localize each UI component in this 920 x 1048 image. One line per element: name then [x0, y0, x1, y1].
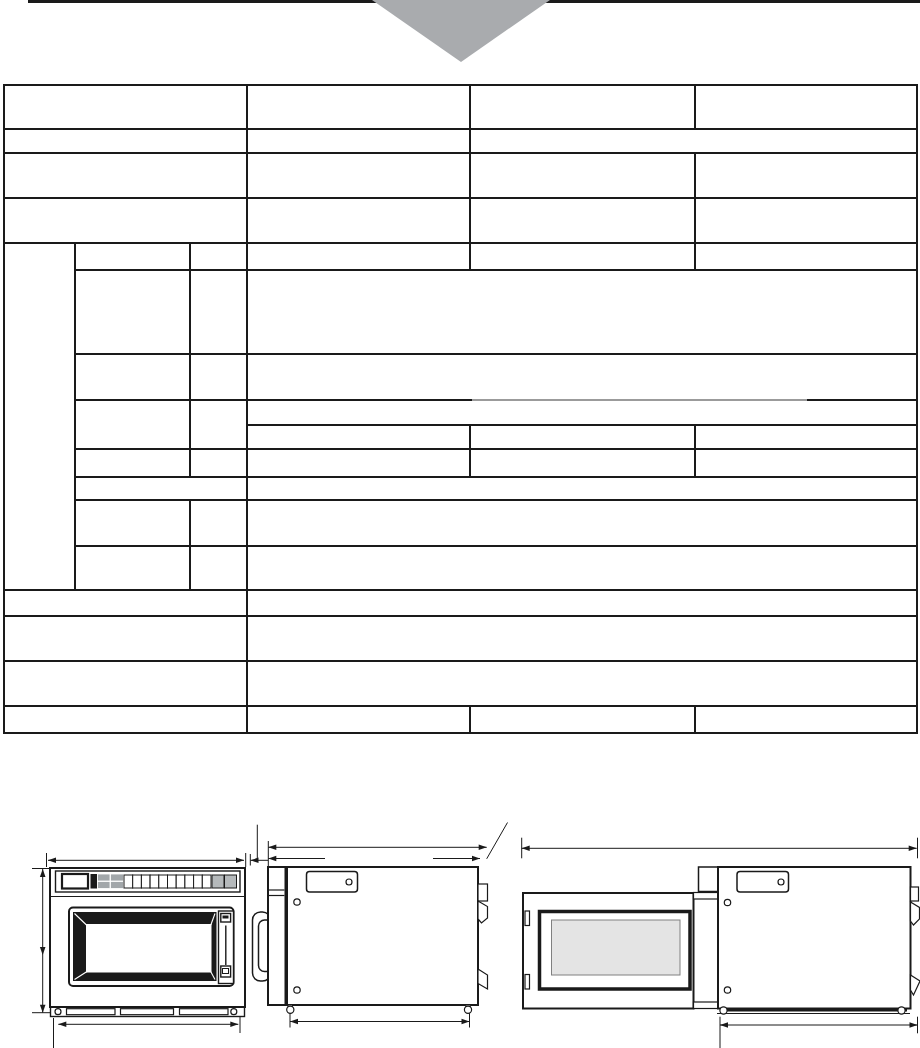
table-gridline-h-faded	[472, 399, 807, 401]
open-view-cabinet	[718, 867, 911, 1009]
table-gridline-h	[75, 448, 918, 450]
table-gridline-v	[469, 84, 471, 270]
door-window-glass	[552, 920, 681, 975]
down-triangle-icon	[372, 0, 550, 62]
open-door	[523, 893, 694, 1009]
door-edge-bar	[285, 867, 289, 1005]
table-gridline-v	[189, 242, 191, 477]
document-page	[0, 0, 920, 1048]
table-gridline-h	[75, 499, 918, 501]
side-view-figure	[253, 823, 508, 1028]
table-gridline-h	[3, 152, 918, 154]
table-gridline-v	[694, 84, 696, 129]
table-gridline-v	[694, 705, 696, 734]
table-gridline-v	[469, 424, 471, 477]
spec-table	[3, 84, 918, 734]
feet	[287, 1005, 472, 1013]
table-gridline-h	[3, 705, 918, 707]
hinge-tab	[694, 1002, 719, 1009]
door-open-view-figure	[522, 838, 920, 1048]
table-gridline-h	[247, 424, 918, 426]
top-left-plate	[699, 867, 719, 892]
table-gridline-h	[3, 128, 918, 130]
table-gridline-v	[246, 84, 248, 734]
side-cabinet	[268, 867, 478, 1005]
rear-brackets	[478, 884, 488, 989]
table-gridline-v	[74, 242, 76, 590]
table-gridline-h	[75, 476, 918, 478]
door-window	[86, 924, 212, 973]
table-gridline-h	[3, 615, 918, 617]
table-gridline-h	[3, 660, 918, 662]
rear-brackets	[911, 887, 920, 995]
keypad-buttons	[124, 875, 237, 888]
table-gridline-v	[694, 152, 696, 270]
front-view-figure	[32, 825, 268, 1048]
front-door	[69, 908, 234, 987]
table-gridline-h	[3, 589, 918, 591]
technical-drawings	[0, 810, 920, 1048]
table-gridline-v	[189, 499, 191, 590]
table-gridline-h	[75, 269, 918, 271]
table-gridline-v	[469, 705, 471, 734]
table-gridline-h	[75, 353, 918, 355]
hinge-tab	[694, 893, 719, 900]
table-gridline-h	[75, 545, 918, 547]
table-gridline-h	[3, 197, 918, 199]
table-gridline-h	[3, 242, 918, 244]
table-gridline-v	[694, 424, 696, 477]
front-base	[51, 1007, 245, 1017]
